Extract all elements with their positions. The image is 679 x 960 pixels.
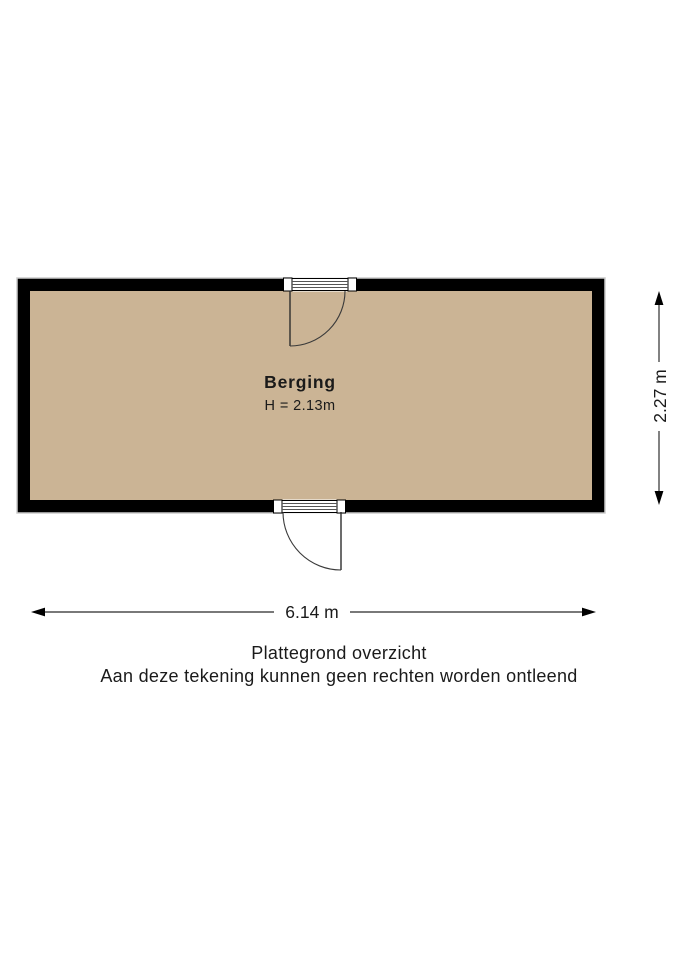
caption-disclaimer: Aan deze tekening kunnen geen rechten wo…: [100, 666, 577, 686]
arrow-down-icon: [655, 491, 664, 505]
bottom-door-jamb-right: [337, 500, 346, 513]
top-door-jamb-left: [284, 278, 293, 291]
arrow-left-icon: [31, 608, 45, 617]
arrow-right-icon: [582, 608, 596, 617]
dimension-width: 6.14 m: [31, 602, 596, 622]
bottom-door-jamb-left: [274, 500, 283, 513]
floorplan-drawing: Berging H = 2.13m 2.27 m 6.14 m Plattegr…: [0, 0, 679, 960]
room-ceiling-height-label: H = 2.13m: [265, 398, 336, 414]
dimension-height: 2.27 m: [650, 291, 670, 505]
arrow-up-icon: [655, 291, 664, 305]
bottom-door-swing-arc: [283, 512, 341, 570]
room-floor: [30, 291, 592, 500]
room-name-label: Berging: [264, 372, 336, 392]
dimension-width-label: 6.14 m: [285, 602, 339, 622]
caption-title: Plattegrond overzicht: [251, 643, 426, 663]
top-door-jamb-right: [348, 278, 357, 291]
bottom-door-opening: [273, 500, 346, 571]
floorplan-page: Berging H = 2.13m 2.27 m 6.14 m Plattegr…: [0, 0, 679, 960]
dimension-height-label: 2.27 m: [650, 369, 670, 423]
